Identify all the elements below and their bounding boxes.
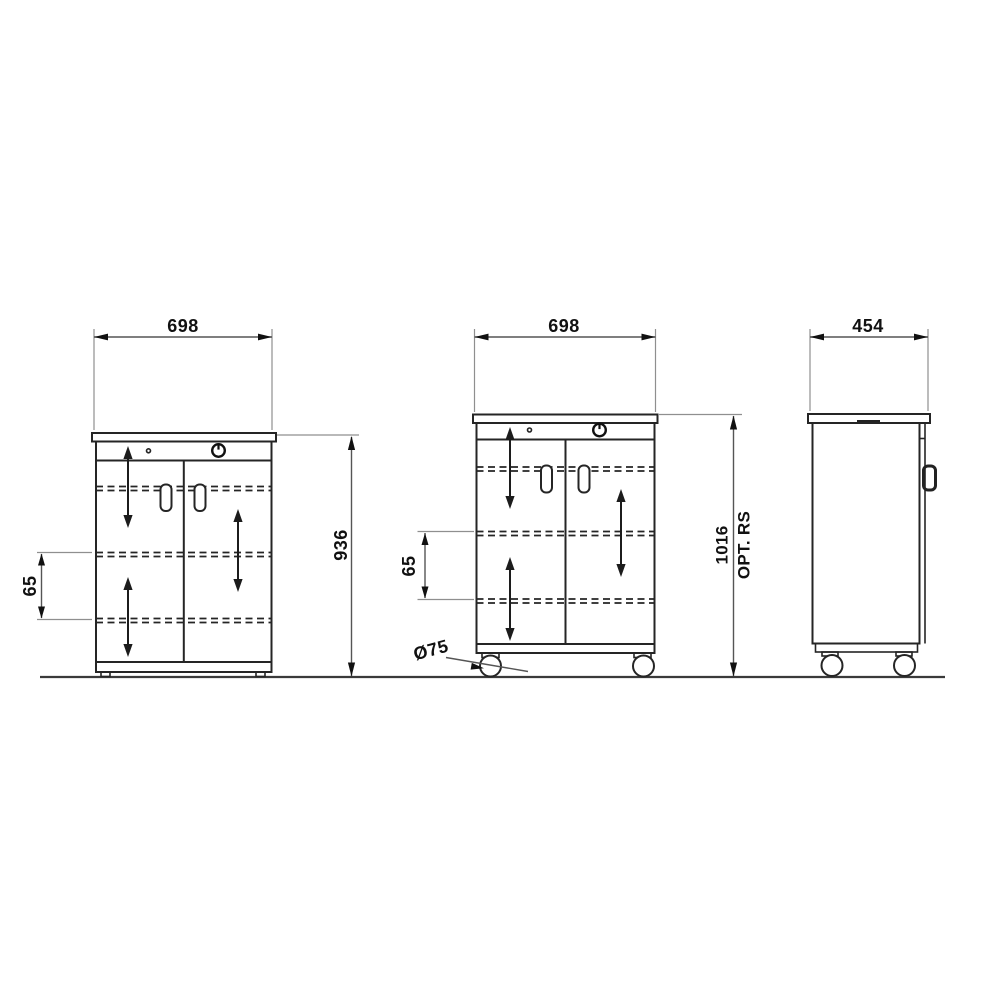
door-handle-right [579, 466, 590, 493]
side-depth-dimension: 454 [810, 316, 928, 411]
middle-top-panel [473, 415, 658, 424]
arrowhead-left [94, 334, 108, 341]
technical-drawing-canvas: 698 [0, 0, 1000, 1000]
side-view: 454 [808, 316, 936, 676]
side-depth-label: 454 [852, 316, 884, 336]
side-plinth [816, 644, 918, 653]
drawing-svg: 698 [0, 0, 1000, 1000]
arrowhead-top [348, 436, 355, 450]
arrowhead-bottom [730, 663, 737, 677]
front-width-label: 698 [167, 316, 199, 336]
door-handle-left [541, 466, 552, 493]
arrowhead-right [914, 334, 928, 341]
arrowhead-bottom [348, 663, 355, 677]
middle-cabinet [473, 415, 658, 677]
arrowhead-top [38, 554, 45, 566]
arrowhead-top [422, 533, 429, 545]
arrowhead-top [730, 416, 737, 430]
middle-width-label: 698 [548, 316, 580, 336]
front-height-label: 936 [331, 529, 351, 561]
caster-wheel-right [894, 655, 915, 676]
front-foot-right [256, 672, 265, 677]
caster-wheel-left [822, 655, 843, 676]
lock-icon [212, 444, 225, 457]
arrowhead-right [258, 334, 272, 341]
arrowhead-left [475, 334, 489, 341]
caster-diameter-label: Ø75 [411, 636, 450, 665]
side-body [813, 423, 920, 644]
front-width-dimension: 698 [94, 316, 272, 430]
keyhole-dot-icon [147, 449, 151, 453]
front-cabinet [92, 433, 276, 677]
door-handle-left [161, 485, 172, 512]
arrowhead-bottom [422, 587, 429, 599]
arrowhead-bottom [38, 607, 45, 619]
keyhole-dot-icon [528, 428, 532, 432]
middle-height-label: 1016 [713, 525, 732, 564]
middle-shelf-gap-dimension: 65 [399, 532, 474, 600]
middle-width-dimension: 698 [475, 316, 656, 412]
door-handle-right [195, 485, 206, 512]
caster-wheel-right [633, 656, 654, 677]
front-foot-left [101, 672, 110, 677]
side-cabinet [808, 414, 936, 676]
middle-height-note-label: OPT. RS [735, 511, 754, 579]
arrowhead-left [810, 334, 824, 341]
front-view: 698 [20, 316, 359, 677]
arrowhead-right [642, 334, 656, 341]
front-top-panel [92, 433, 276, 442]
front-shelf-gap-dimension: 65 [20, 553, 92, 620]
middle-shelf-gap-label: 65 [399, 555, 419, 576]
middle-height-dimension: 1016 OPT. RS [658, 415, 754, 677]
front-shelf-gap-label: 65 [20, 575, 40, 596]
middle-view: 698 [399, 316, 754, 677]
lock-icon [593, 424, 606, 437]
front-height-dimension: 936 [277, 435, 359, 677]
